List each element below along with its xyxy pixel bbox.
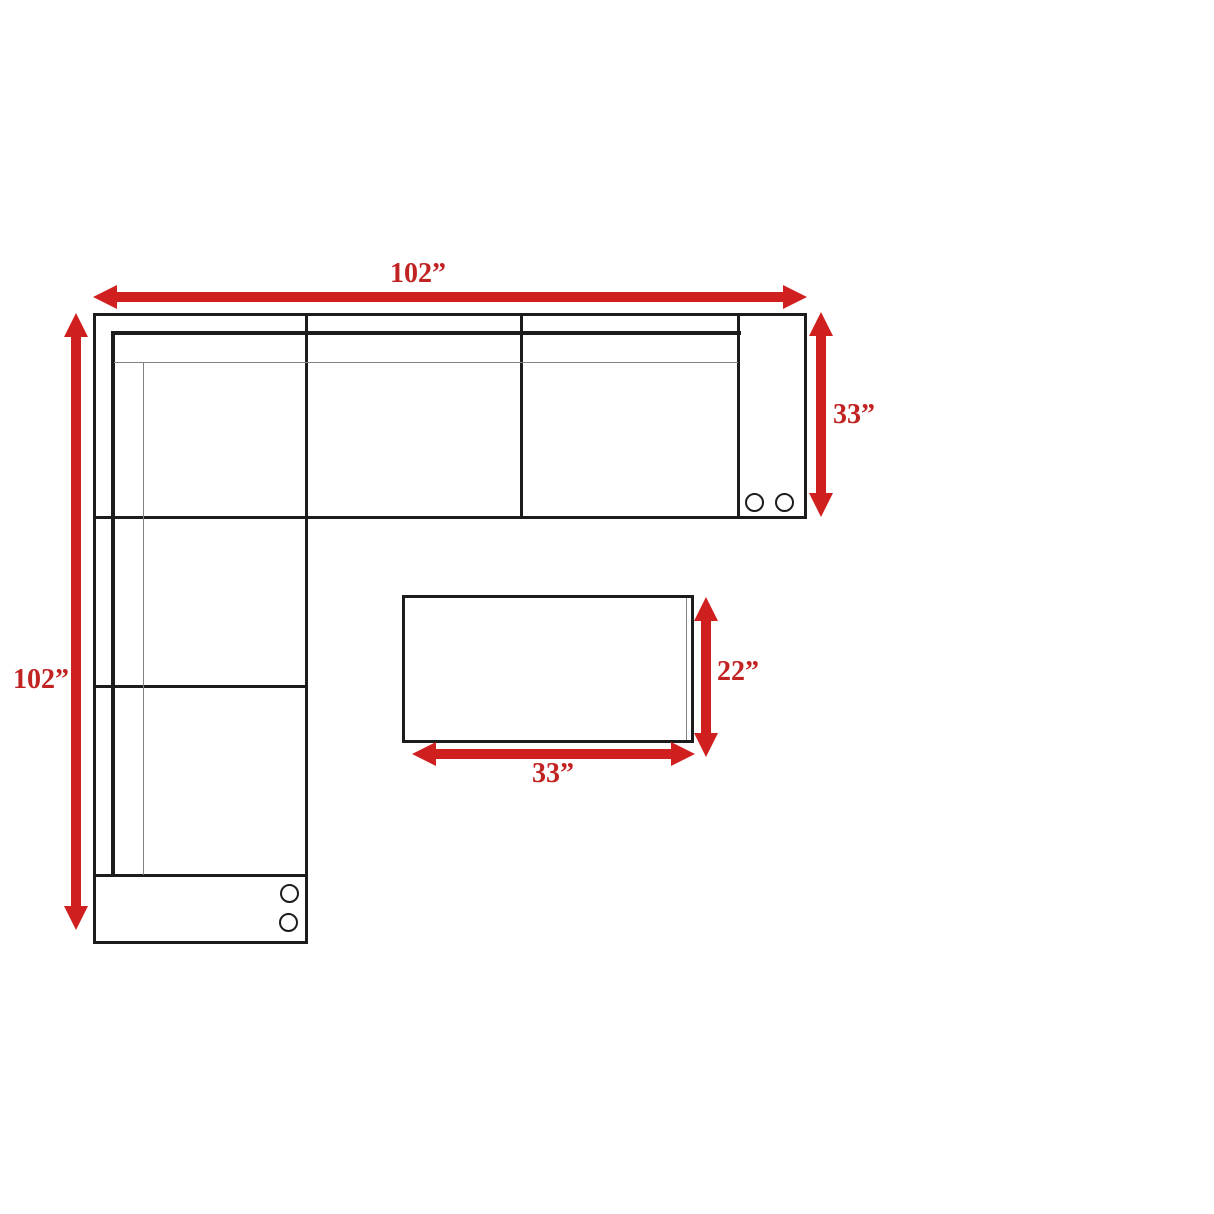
arrow-head-down-icon <box>694 733 718 757</box>
arrow-head-up-icon <box>694 597 718 621</box>
sofa-left-arm-bottom-edge <box>93 941 308 944</box>
arrow-head-up-icon <box>809 312 833 336</box>
right-armrest-divider <box>737 313 740 519</box>
backrest-inner-line <box>111 331 741 335</box>
cupholder-icon <box>280 884 299 903</box>
ottoman-width-label: 33” <box>503 758 603 790</box>
sofa-outer-right-edge <box>804 313 807 519</box>
seat-divider-middle <box>520 313 523 519</box>
seat-cushion-line-horizontal <box>114 362 738 363</box>
arrow-bar <box>71 327 81 916</box>
arrow-head-left-icon <box>93 285 117 309</box>
arrow-head-down-icon <box>64 906 88 930</box>
arrow-head-up-icon <box>64 313 88 337</box>
cupholder-icon <box>745 493 764 512</box>
sofa-width-label: 102” <box>368 258 468 290</box>
sofa-left-arm-right-edge <box>305 313 308 944</box>
ottoman-edge-line <box>686 598 687 740</box>
sofa-outer-top-edge <box>93 313 807 316</box>
arrow-head-right-icon <box>671 742 695 766</box>
cupholder-icon <box>279 913 298 932</box>
left-armrest-inner-line <box>111 331 115 877</box>
dimension-arrow-sofa-length <box>64 313 88 930</box>
sofa-length-label: 102” <box>2 664 80 696</box>
diagram-canvas: 102” 102” 33” 22” 33” <box>0 0 1214 1214</box>
cupholder-icon <box>775 493 794 512</box>
ottoman-depth-label: 22” <box>707 656 769 688</box>
arrow-head-right-icon <box>783 285 807 309</box>
sofa-top-band-bottom-edge <box>93 516 807 519</box>
sofa-outer-left-edge <box>93 313 96 944</box>
arrow-head-left-icon <box>412 742 436 766</box>
arrow-bar <box>107 292 793 302</box>
ottoman-rectangle <box>402 595 694 743</box>
seat-cushion-line-vertical <box>143 362 144 875</box>
arrow-head-down-icon <box>809 493 833 517</box>
left-arm-seat-divider <box>93 685 308 688</box>
left-arm-front-edge <box>93 874 308 877</box>
sofa-depth-label: 33” <box>823 399 885 431</box>
